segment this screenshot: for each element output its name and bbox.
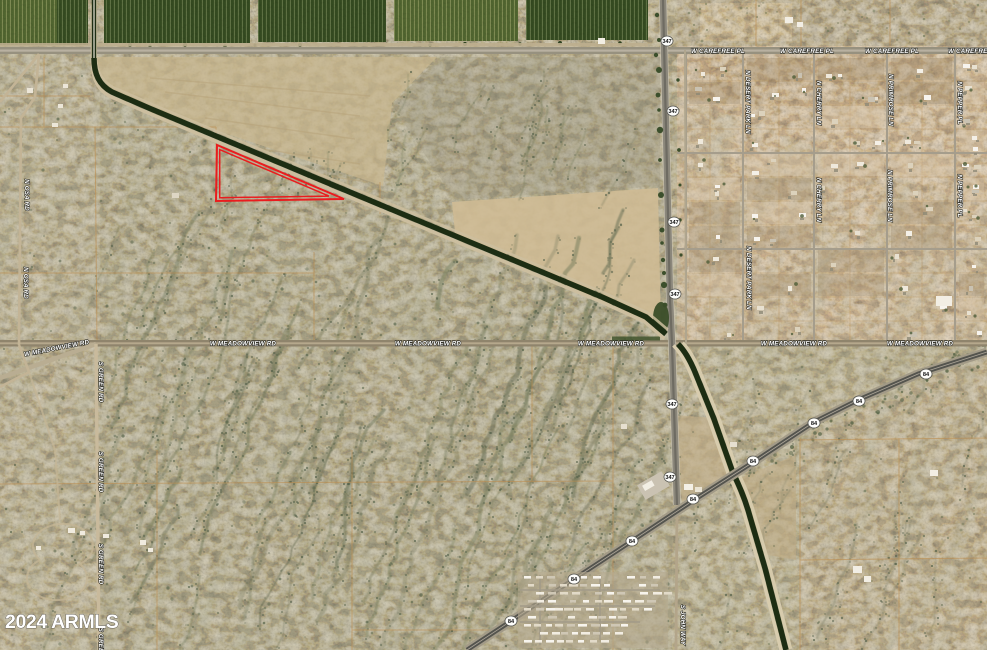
svg-text:N PRIMROSE LN: N PRIMROSE LN: [886, 170, 893, 222]
svg-text:347: 347: [665, 475, 674, 481]
svg-text:N DESERT PARK LN: N DESERT PARK LN: [744, 70, 751, 134]
svg-text:347: 347: [669, 220, 678, 226]
svg-text:S GREEN RD: S GREEN RD: [97, 362, 104, 403]
svg-text:W CAREFREE PL: W CAREFREE PL: [691, 48, 745, 55]
svg-text:84: 84: [750, 459, 757, 465]
svg-text:S GREEN RD: S GREEN RD: [97, 544, 104, 585]
svg-text:W MEADOWVIEW RD: W MEADOWVIEW RD: [887, 341, 954, 348]
svg-text:347: 347: [668, 109, 677, 115]
svg-text:S GREEN RD: S GREEN RD: [97, 452, 104, 493]
svg-text:N CHERRY LN: N CHERRY LN: [815, 81, 822, 126]
svg-text:347: 347: [662, 39, 671, 45]
svg-text:W CAREFREE PL: W CAREFREE PL: [948, 48, 987, 55]
svg-text:2024 ARMLS: 2024 ARMLS: [5, 611, 119, 633]
svg-text:W CAREFREE PL: W CAREFREE PL: [780, 48, 834, 55]
svg-text:N OSA RD: N OSA RD: [23, 179, 30, 211]
svg-text:84: 84: [811, 421, 818, 427]
svg-text:84: 84: [629, 539, 636, 545]
svg-text:W CAREFREE PL: W CAREFREE PL: [865, 48, 919, 55]
svg-text:W MEADOWVIEW RD: W MEADOWVIEW RD: [578, 341, 645, 348]
svg-text:84: 84: [571, 577, 578, 583]
svg-text:N PEPPER PL: N PEPPER PL: [956, 174, 963, 217]
svg-text:84: 84: [508, 619, 515, 625]
svg-text:84: 84: [690, 497, 697, 503]
svg-text:84: 84: [923, 372, 930, 378]
svg-text:S JOHN WAY: S JOHN WAY: [679, 605, 686, 646]
svg-text:N CHERRY LN: N CHERRY LN: [815, 178, 822, 223]
svg-text:W MEADOWVIEW RD: W MEADOWVIEW RD: [210, 341, 277, 348]
svg-text:N PRIMROSE LN: N PRIMROSE LN: [887, 74, 894, 126]
svg-text:W MEADOWVIEW RD: W MEADOWVIEW RD: [395, 341, 462, 348]
svg-text:W MEADOWVIEW RD: W MEADOWVIEW RD: [761, 341, 828, 348]
svg-text:N PEPPER PL: N PEPPER PL: [956, 81, 963, 124]
svg-text:N DESERT PARK LN: N DESERT PARK LN: [745, 246, 752, 310]
svg-text:347: 347: [667, 402, 676, 408]
svg-text:84: 84: [856, 399, 863, 405]
svg-text:347: 347: [670, 292, 679, 298]
svg-text:N OSA RD: N OSA RD: [22, 267, 29, 299]
